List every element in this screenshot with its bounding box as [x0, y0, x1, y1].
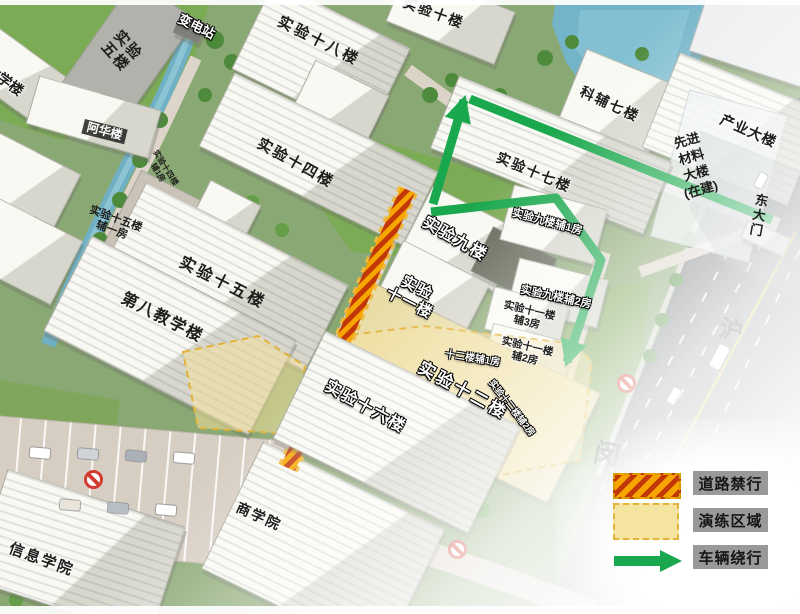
legend-label-drill-area: 演练区域	[693, 508, 768, 532]
legend-swatch-road-closed	[613, 473, 681, 499]
legend: 道路禁行 演练区域 车辆绕行	[0, 0, 800, 614]
image-border-bottom	[0, 606, 800, 614]
legend-label-road-closed: 道路禁行	[693, 471, 768, 495]
legend-swatch-detour-arrow	[608, 548, 684, 574]
campus-drill-map: 沪 闵 变电站 实验 五楼 数学楼 阿华楼 实验十八楼 实验十楼 实验十四楼 实…	[0, 0, 800, 614]
legend-arrow-head-icon	[660, 550, 682, 572]
legend-label-detour: 车辆绕行	[693, 545, 768, 569]
legend-swatch-drill-area	[613, 503, 679, 540]
image-border-top	[0, 0, 800, 5]
